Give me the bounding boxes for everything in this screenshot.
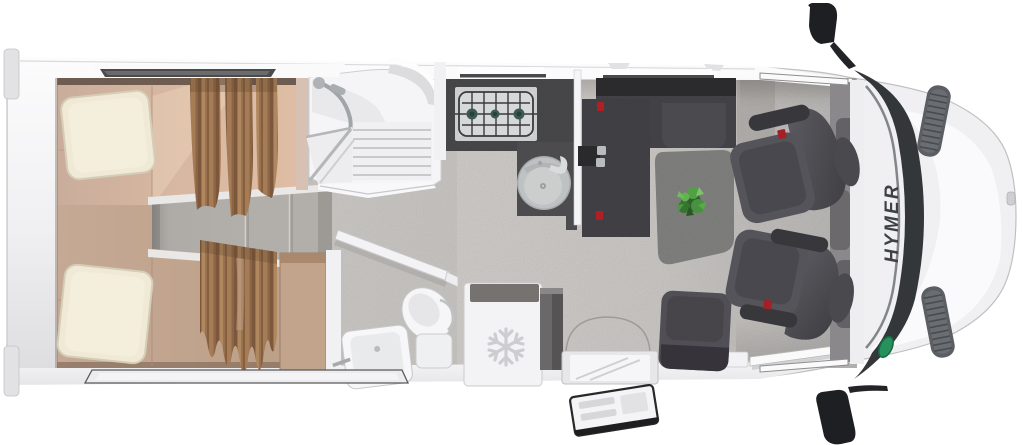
svg-text:HYMER: HYMER	[882, 183, 903, 263]
